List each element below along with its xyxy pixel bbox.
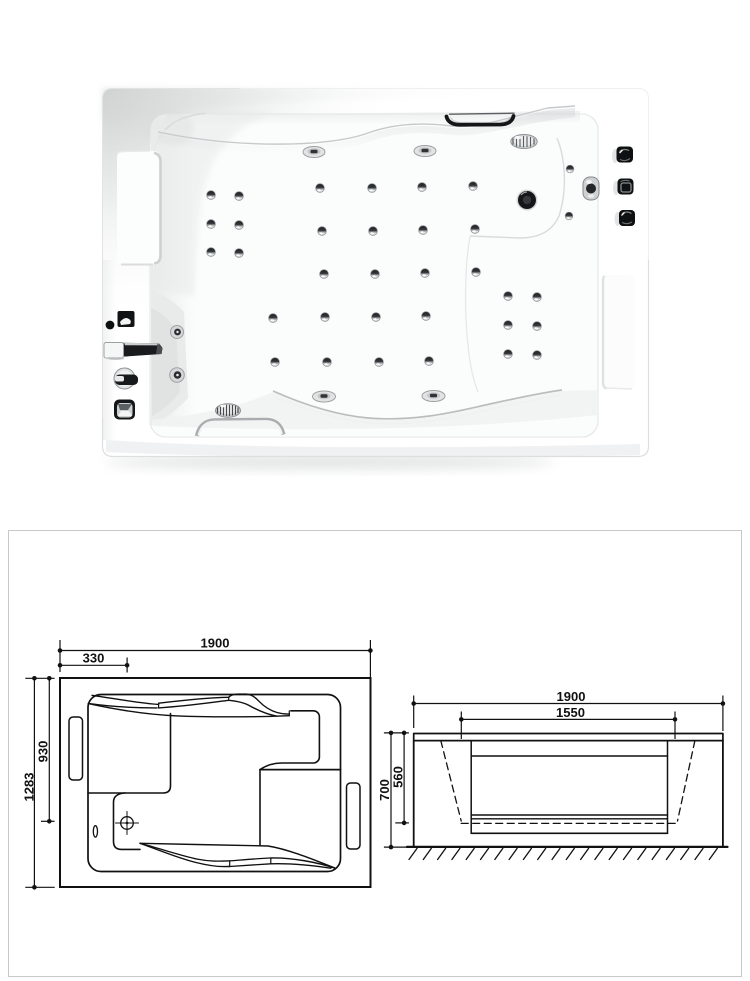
svg-text:1900: 1900 — [557, 689, 586, 704]
svg-text:930: 930 — [36, 741, 51, 763]
svg-text:1283: 1283 — [22, 773, 37, 802]
svg-text:1550: 1550 — [556, 705, 585, 720]
svg-text:1900: 1900 — [201, 636, 230, 651]
svg-text:560: 560 — [390, 766, 405, 788]
svg-text:330: 330 — [83, 651, 105, 666]
